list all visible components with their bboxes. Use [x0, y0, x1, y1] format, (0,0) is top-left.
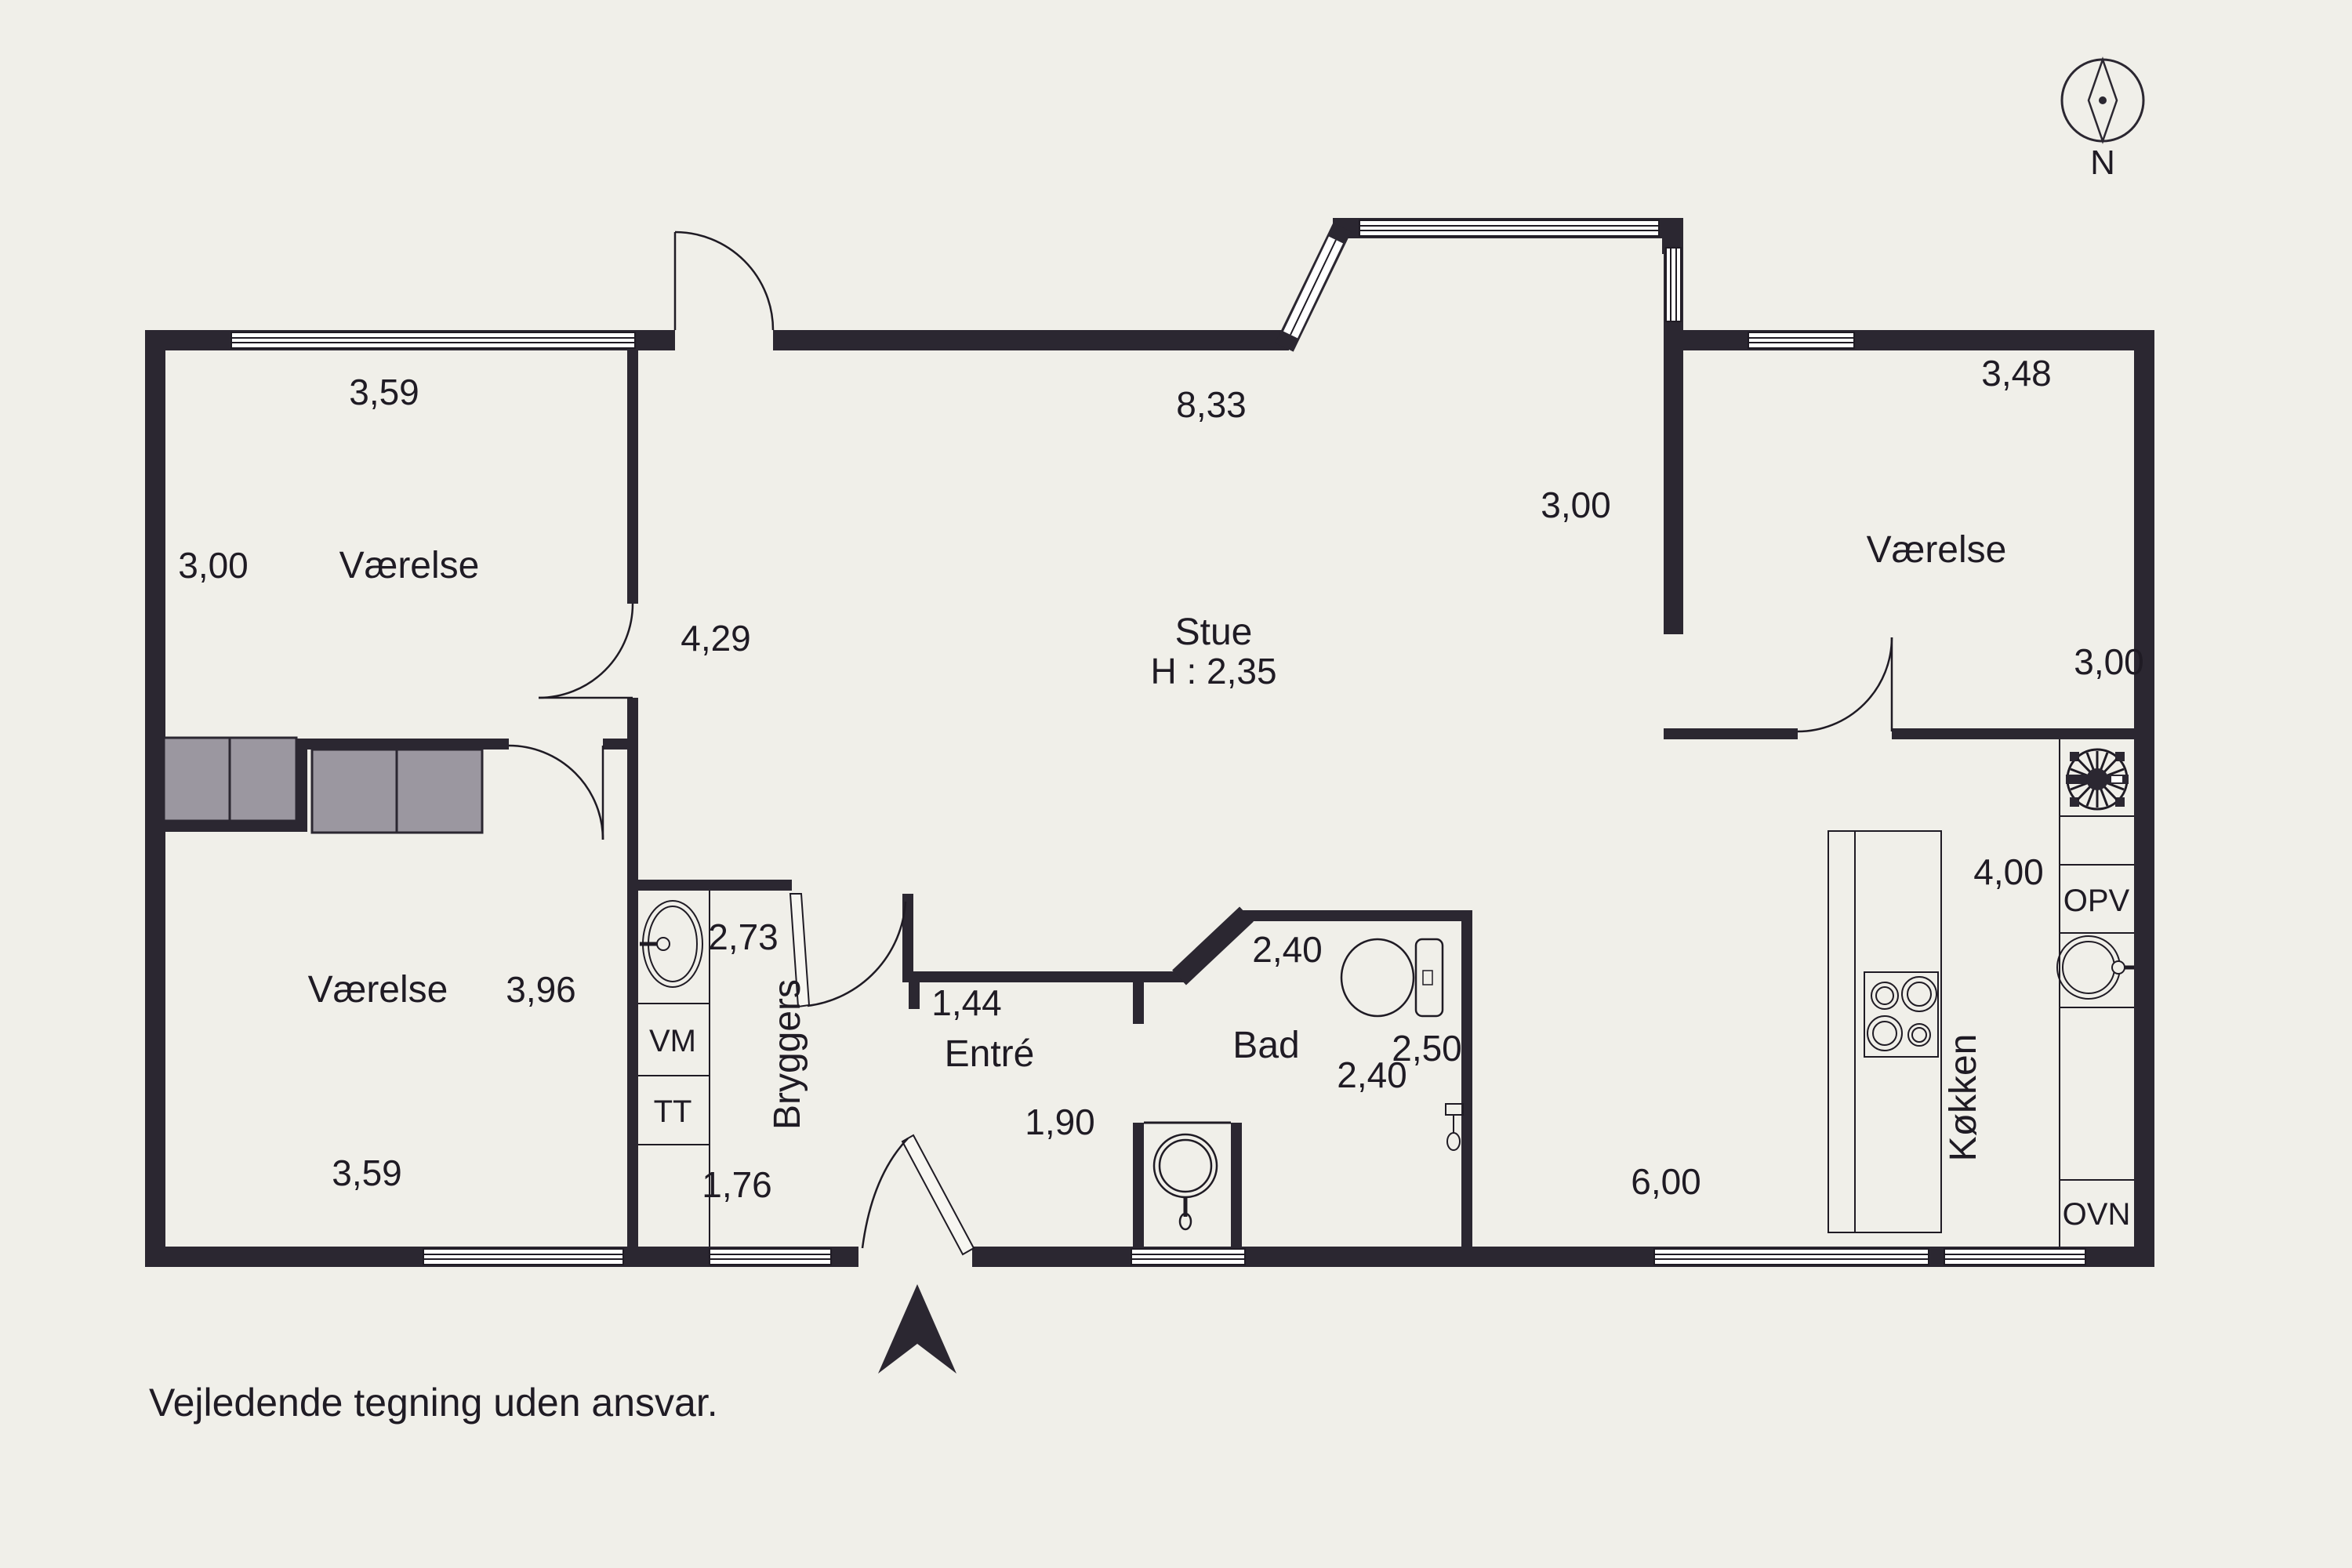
dim-bryggers-bottom: 1,76	[702, 1164, 772, 1205]
kitchen-island	[1828, 831, 1941, 1232]
room-label-koekken: Køkken	[1943, 1034, 1984, 1162]
cooktop-icon	[1864, 972, 1938, 1057]
floorplan-page: 3,59 3,00 Værelse 8,33 4,29 Stue H : 2,3…	[0, 0, 2352, 1568]
window-top-left	[231, 332, 635, 348]
dim-bad-top: 2,40	[1252, 929, 1323, 970]
window-bay-vertical	[1666, 248, 1681, 321]
wardrobes	[164, 738, 482, 833]
door-top-exterior	[675, 232, 773, 330]
window-bay-diagonal	[1290, 240, 1336, 335]
kitchen-sink-icon	[2057, 936, 2134, 999]
door-bedroom-bottom-left	[509, 746, 603, 840]
room-label-vaerelse-bl: Værelse	[308, 969, 448, 1011]
window-bottom-kitchen	[1944, 1249, 2085, 1265]
dim-stue-left: 4,29	[681, 618, 751, 659]
door-entrance	[862, 1135, 974, 1254]
room-label-vaerelse-tr: Værelse	[1867, 529, 2007, 571]
stue-ceiling-height: H : 2,35	[1150, 651, 1276, 691]
disclaimer-text: Vejledende tegning uden ansvar.	[149, 1381, 718, 1425]
window-bottom-bad	[1131, 1249, 1245, 1265]
window-bay-horizontal	[1359, 220, 1659, 236]
kitchen-fixtures	[1828, 739, 2134, 1247]
room-label-stue: Stue	[1175, 612, 1253, 653]
dim-stue-bay: 3,00	[1541, 485, 1611, 525]
room-label-bad: Bad	[1232, 1025, 1299, 1066]
shower-mixer-icon	[1446, 1104, 1463, 1150]
appliance-tt: TT	[654, 1094, 692, 1129]
dim-vaerelse-tr-top: 3,48	[1981, 353, 2052, 394]
bathroom-fixtures	[1144, 939, 1463, 1229]
bryggers-appliance-column	[638, 891, 710, 1247]
walls	[145, 218, 2154, 1267]
dim-vaerelse-bl-bottom: 3,59	[332, 1152, 402, 1193]
dim-vaerelse-tl-left: 3,00	[178, 545, 249, 586]
room-label-entre: Entré	[945, 1033, 1035, 1075]
dim-vaerelse-tr-right: 3,00	[2074, 641, 2144, 682]
dim-entre-bottom: 1,90	[1025, 1102, 1095, 1142]
compass-icon	[2062, 60, 2143, 141]
toilet-icon	[1341, 939, 1443, 1016]
dim-stue-bottom: 6,00	[1631, 1161, 1701, 1202]
door-bedroom-top-right	[1798, 637, 1892, 731]
extractor-fan-icon	[2066, 750, 2129, 809]
dim-vaerelse-tl-top: 3,59	[349, 372, 419, 412]
dim-entre-top: 1,44	[931, 982, 1002, 1023]
compass-north-label: N	[2090, 143, 2115, 182]
bathroom-sink-icon	[1154, 1134, 1217, 1229]
floorplan-drawing: 3,59 3,00 Værelse 8,33 4,29 Stue H : 2,3…	[0, 0, 2352, 1568]
window-bottom-bedroom	[423, 1249, 623, 1265]
appliance-vm: VM	[649, 1024, 696, 1058]
dim-koekken: 4,00	[1973, 851, 2044, 892]
door-bedroom-top-left	[539, 604, 633, 698]
window-bottom-bryggers	[710, 1249, 831, 1265]
appliance-opv: OPV	[2063, 884, 2130, 918]
dim-vaerelse-bl-right: 3,96	[506, 969, 576, 1010]
dim-stue-top: 8,33	[1176, 384, 1247, 425]
window-bottom-stue	[1654, 1249, 1929, 1265]
entrance-arrow-icon	[878, 1284, 956, 1374]
sink-icon	[640, 901, 702, 987]
dim-bad-right: 2,50	[1392, 1028, 1462, 1069]
dim-bryggers-top: 2,73	[708, 916, 779, 957]
room-label-vaerelse-tl: Værelse	[339, 545, 480, 586]
appliance-ovn: OVN	[2063, 1197, 2131, 1232]
room-label-bryggers: Bryggers	[767, 979, 808, 1130]
window-top-right	[1748, 332, 1854, 348]
